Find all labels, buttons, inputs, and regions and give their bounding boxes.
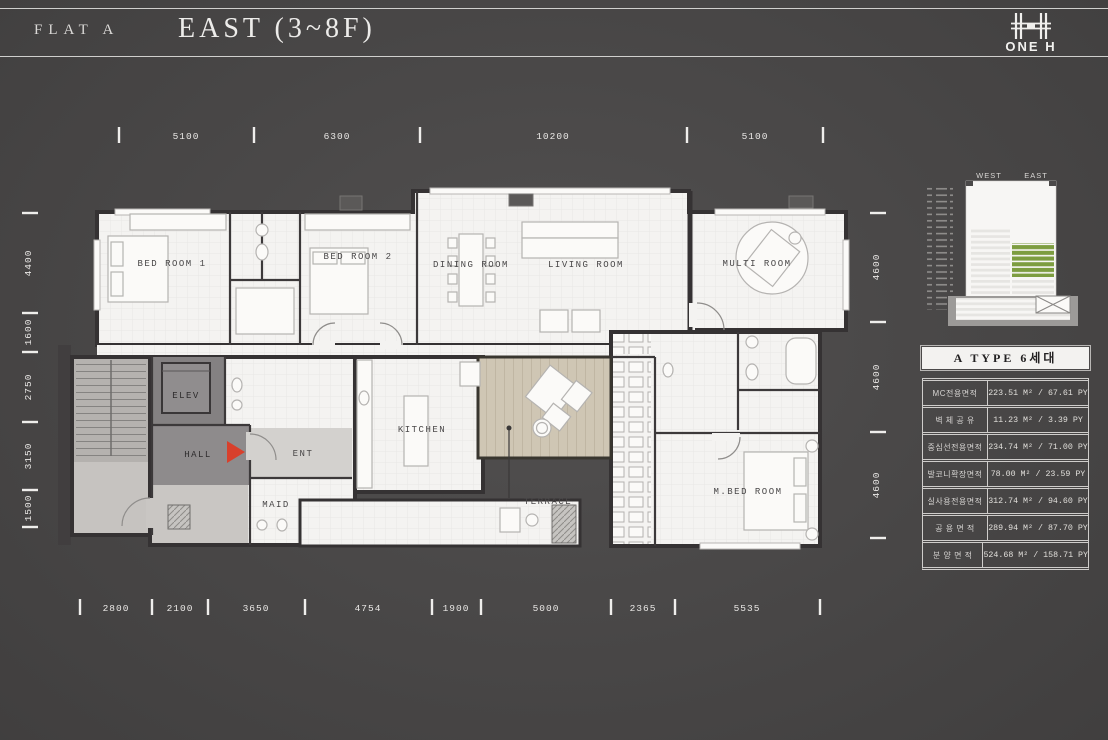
closet-shelves <box>613 359 651 544</box>
table-row: MC전용면적 223.51 M² / 67.61 PY <box>923 378 1088 405</box>
brand-text: ONE H <box>1005 39 1056 54</box>
area-row-value: 234.74 M² / 71.00 PY <box>987 435 1088 459</box>
dim-left-5: 1500 <box>23 495 34 522</box>
area-row-value: 289.94 M² / 87.70 PY <box>987 516 1088 540</box>
sofa <box>522 222 618 238</box>
area-row-value: 78.00 M² / 23.59 PY <box>987 462 1088 486</box>
area-row-value: 312.74 M² / 94.60 PY <box>987 489 1088 513</box>
dim-top-1: 5100 <box>173 131 200 142</box>
dim-bottom-2: 2100 <box>167 603 194 614</box>
area-row-value: 223.51 M² / 67.61 PY <box>987 381 1088 405</box>
area-row-label: 분 양 면 적 <box>923 543 982 567</box>
bathtub <box>786 338 816 384</box>
table-row: 벽 체 공 유 11.23 M² / 3.39 PY <box>923 405 1088 432</box>
dimensions-left: 4400 1600 2750 3150 1500 <box>22 213 38 527</box>
room-label-multi: MULTI ROOM <box>722 259 791 269</box>
area-row-value: 524.68 M² / 158.71 PY <box>982 543 1088 567</box>
room-label-living: LIVING ROOM <box>548 260 624 270</box>
room-label-terrace: TERRACE <box>524 497 572 507</box>
area-row-label: 발코니확장면적 <box>923 462 987 486</box>
room-label-bedroom1: BED ROOM 1 <box>137 259 206 269</box>
area-row-label: 공 용 면 적 <box>923 516 987 540</box>
east-highlighted-floors <box>1012 243 1054 277</box>
dim-right-1: 4600 <box>871 254 882 281</box>
room-label-kitchen: KITCHEN <box>398 425 446 435</box>
dim-left-3: 2750 <box>23 374 34 401</box>
closet-shelves-top <box>613 334 651 354</box>
table-row: 발코니확장면적 78.00 M² / 23.59 PY <box>923 459 1088 486</box>
area-row-label: MC전용면적 <box>923 381 987 405</box>
dim-bottom-8: 5535 <box>734 603 761 614</box>
dimensions-bottom: 2800 2100 3650 4754 1900 5000 2365 5535 <box>80 599 820 615</box>
dim-top-4: 5100 <box>742 131 769 142</box>
dimensions-right: 4600 4600 4600 <box>870 213 886 538</box>
room-label-dining: DINING ROOM <box>433 260 509 270</box>
table-row: 공 용 면 적 289.94 M² / 87.70 PY <box>923 513 1088 540</box>
area-table: A TYPE 6세대 MC전용면적 223.51 M² / 67.61 PY 벽… <box>922 347 1089 570</box>
dim-left-1: 4400 <box>23 250 34 277</box>
west-floors <box>971 228 1010 296</box>
core-wall <box>58 345 71 545</box>
dim-bottom-6: 5000 <box>533 603 560 614</box>
stair-lower <box>74 462 148 533</box>
porch-zone <box>152 485 248 543</box>
table-row: 중심선전용면적 234.74 M² / 71.00 PY <box>923 432 1088 459</box>
dim-left-4: 3150 <box>23 443 34 470</box>
key-plan-east-label: EAST <box>1024 171 1048 180</box>
room-label-maid: MAID <box>262 500 290 510</box>
room-label-elev: ELEV <box>172 391 200 401</box>
dim-right-3: 4600 <box>871 472 882 499</box>
room-label-bedroom2: BED ROOM 2 <box>323 252 392 262</box>
area-row-value: 11.23 M² / 3.39 PY <box>987 408 1088 432</box>
room-label-mbed: M.BED ROOM <box>713 487 782 497</box>
kitchen-counter <box>357 360 372 488</box>
area-row-label: 벽 체 공 유 <box>923 408 987 432</box>
dim-bottom-5: 1900 <box>443 603 470 614</box>
table-row: 실사용전용면적 312.74 M² / 94.60 PY <box>923 486 1088 513</box>
key-plan-west-label: WEST <box>976 171 1002 180</box>
area-table-body: MC전용면적 223.51 M² / 67.61 PY 벽 체 공 유 11.2… <box>922 378 1089 570</box>
dimensions-top: 5100 6300 10200 5100 <box>119 127 823 143</box>
one-h-logo-icon <box>1011 13 1051 39</box>
dim-right-2: 4600 <box>871 364 882 391</box>
dim-top-3: 10200 <box>536 131 570 142</box>
key-plan: WEST EAST <box>927 171 1078 326</box>
room-label-ent: ENT <box>293 449 314 459</box>
dim-bottom-1: 2800 <box>103 603 130 614</box>
area-table-title: A TYPE 6세대 <box>922 347 1089 369</box>
dim-bottom-4: 4754 <box>355 603 382 614</box>
dim-bottom-7: 2365 <box>630 603 657 614</box>
floor-scale-ticks <box>927 186 953 310</box>
dim-top-2: 6300 <box>324 131 351 142</box>
dim-bottom-3: 3650 <box>243 603 270 614</box>
dining-table <box>459 234 483 306</box>
dim-left-2: 1600 <box>23 319 34 346</box>
area-row-label: 중심선전용면적 <box>923 435 987 459</box>
room-label-hall: HALL <box>184 450 212 460</box>
area-row-label: 실사용전용면적 <box>923 489 987 513</box>
table-row: 분 양 면 적 524.68 M² / 158.71 PY <box>923 540 1088 567</box>
